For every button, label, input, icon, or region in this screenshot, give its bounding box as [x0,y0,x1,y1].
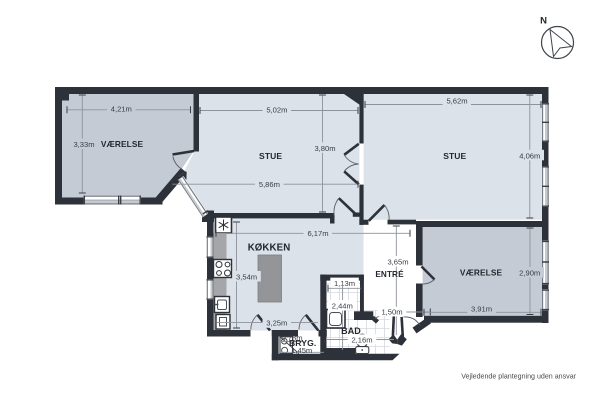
svg-text:3,91m: 3,91m [471,305,492,314]
svg-text:VÆRELSE: VÆRELSE [460,268,503,278]
svg-text:5,86m: 5,86m [259,180,280,189]
svg-text:VÆRELSE: VÆRELSE [101,139,144,149]
svg-text:1,50m: 1,50m [381,307,402,316]
svg-text:STUE: STUE [443,151,466,161]
svg-text:4,06m: 4,06m [519,151,540,160]
svg-text:3,54m: 3,54m [236,272,257,281]
svg-text:BRYG.: BRYG. [289,338,316,348]
svg-text:6,17m: 6,17m [307,229,328,238]
svg-text:Vejledende plantegning uden an: Vejledende plantegning uden ansvar [461,373,576,381]
svg-text:3,33m: 3,33m [73,140,94,149]
svg-text:N: N [540,16,547,27]
svg-text:4,21m: 4,21m [111,105,132,114]
svg-text:2,90m: 2,90m [519,269,540,278]
svg-text:3,80m: 3,80m [314,144,335,153]
svg-text:5,62m: 5,62m [446,96,467,105]
svg-text:KØKKEN: KØKKEN [248,242,291,253]
svg-text:3,25m: 3,25m [266,319,287,328]
svg-text:1,13m: 1,13m [334,279,355,288]
svg-text:BAD: BAD [341,326,361,336]
svg-text:2,44m: 2,44m [332,301,353,310]
svg-text:ENTRÉ: ENTRÉ [375,269,404,279]
svg-text:STUE: STUE [259,151,282,161]
svg-text:5,02m: 5,02m [266,106,287,115]
svg-text:2,16m: 2,16m [351,335,372,344]
svg-text:3,65m: 3,65m [387,257,408,266]
